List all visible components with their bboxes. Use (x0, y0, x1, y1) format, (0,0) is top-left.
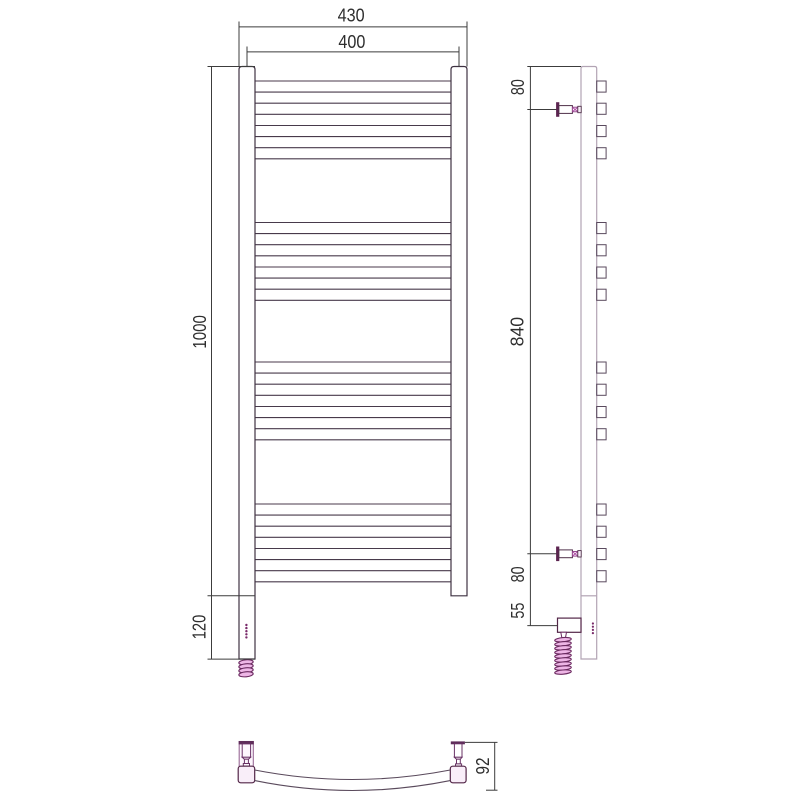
svg-text:80: 80 (508, 79, 528, 95)
svg-text:1000: 1000 (190, 315, 210, 349)
svg-text:92: 92 (473, 758, 493, 775)
svg-text:840: 840 (508, 317, 528, 347)
svg-text:80: 80 (508, 566, 528, 582)
svg-text:55: 55 (508, 603, 528, 619)
svg-text:430: 430 (338, 6, 365, 26)
svg-text:400: 400 (338, 32, 365, 52)
svg-text:120: 120 (189, 615, 209, 640)
